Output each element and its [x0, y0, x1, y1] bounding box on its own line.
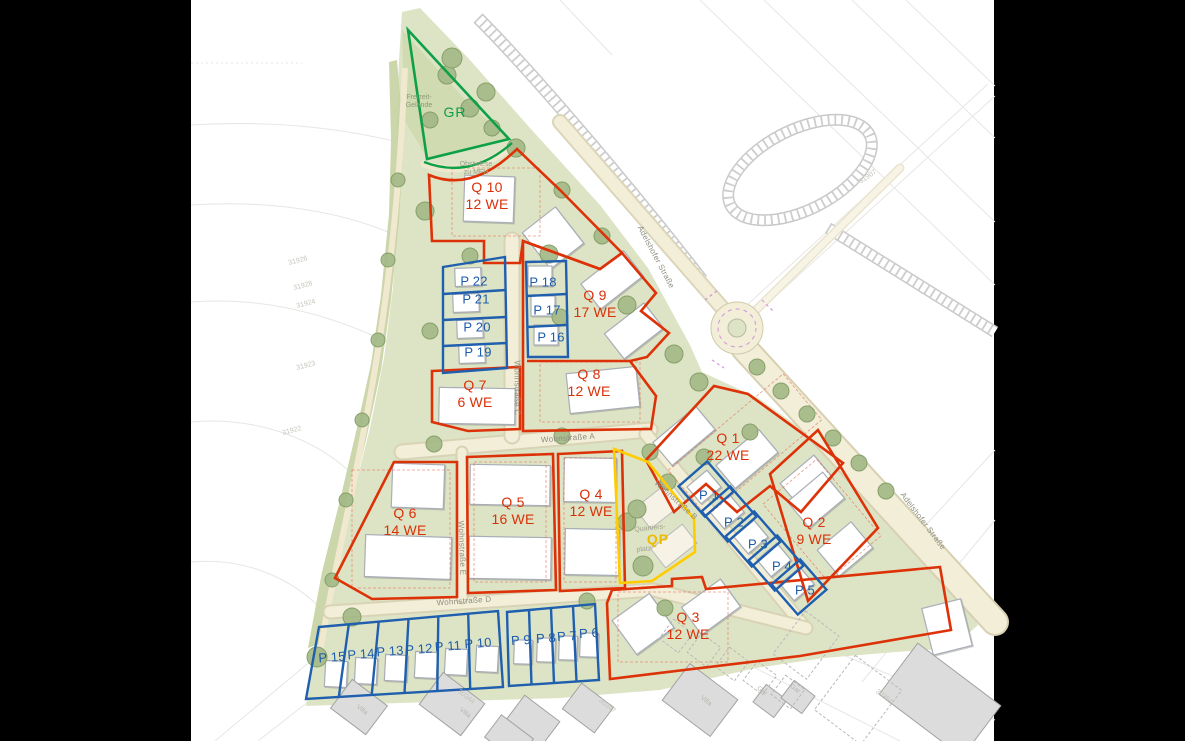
label-quarter-q3: Q 312 WE	[666, 609, 709, 643]
label-plot-p17: P 17	[533, 303, 560, 318]
label-plot-p8: P 8	[536, 630, 557, 646]
label-plot-p7: P 7	[557, 628, 578, 644]
note-leisure: Freizeit-Gelände	[406, 94, 432, 110]
label-plot-p3: P 3	[748, 537, 768, 552]
label-street-e: Wohnstraße E	[457, 521, 468, 576]
label-plot-p12: P 12	[405, 641, 433, 658]
label-quarter-q5: Q 516 WE	[491, 494, 534, 528]
label-plot-p20: P 20	[463, 320, 490, 335]
label-plot-p16: P 16	[537, 330, 564, 345]
label-plot-p13: P 13	[376, 643, 404, 660]
label-plot-p11: P 11	[434, 638, 461, 655]
label-quarter-q4: Q 412 WE	[569, 486, 612, 520]
label-plot-p9: P 9	[511, 632, 532, 648]
label-plot-p15: P 15	[318, 649, 346, 666]
label-plot-p4: P 4	[772, 559, 792, 574]
label-plot-p2: P 2	[724, 515, 744, 530]
label-plot-p5: P 5	[795, 583, 815, 598]
label-quarter-q10: Q 1012 WE	[465, 179, 508, 213]
note-orchard: Obstwiesezu MFH	[460, 161, 493, 177]
site-plan: Q 122 WE Q 29 WE Q 312 WE Q 412 WE Q 516…	[0, 0, 1185, 741]
label-plot-p10: P 10	[464, 635, 492, 652]
label-quarter-q9: Q 917 WE	[573, 287, 616, 321]
label-plot-p18: P 18	[529, 275, 556, 290]
label-quarter-q6: Q 614 WE	[383, 505, 426, 539]
label-plot-p21: P 21	[462, 292, 489, 307]
label-quarter-q1: Q 122 WE	[706, 430, 749, 464]
label-plot-p14: P 14	[347, 646, 375, 663]
label-quarter-q2: Q 29 WE	[796, 514, 831, 548]
label-quarter-q7: Q 76 WE	[457, 377, 492, 411]
label-street-c: Wohnstraße C	[513, 360, 522, 415]
label-plot-p19: P 19	[464, 345, 491, 360]
note-square-2: platz	[636, 545, 652, 555]
label-green-area: GR	[444, 104, 467, 120]
label-quarter-q8: Q 812 WE	[567, 366, 610, 400]
label-plot-p6: P 6	[579, 625, 600, 641]
label-plot-p22: P 22	[460, 274, 487, 289]
label-plot-p1: P 1	[699, 488, 719, 503]
